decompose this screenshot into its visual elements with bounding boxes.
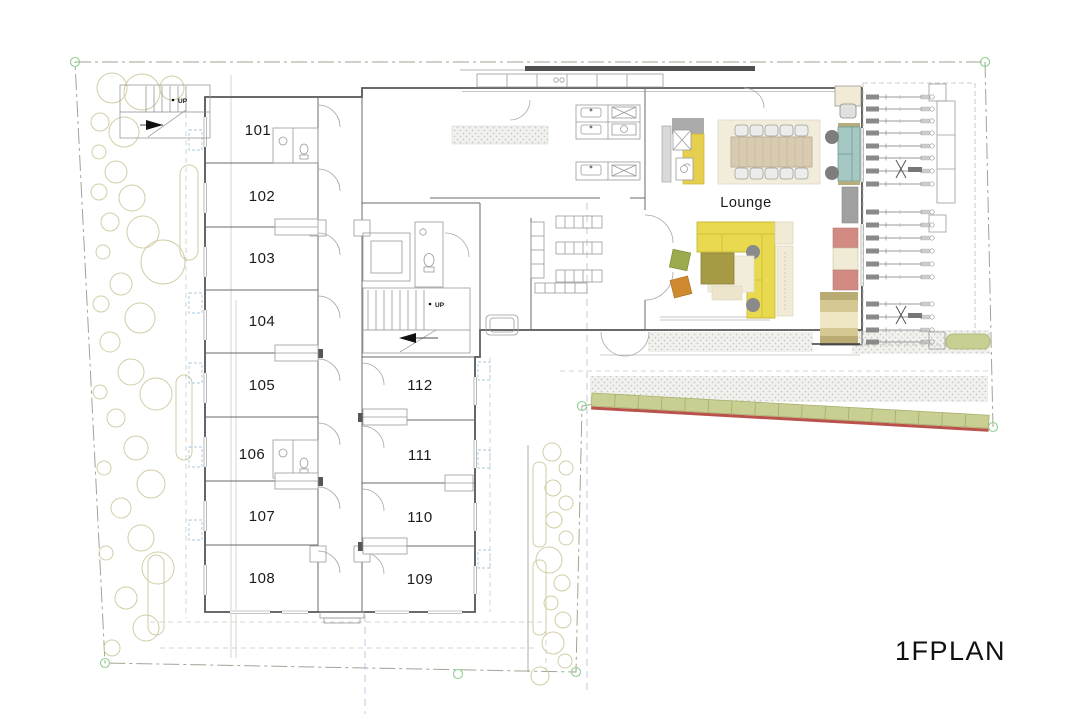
green-planter bbox=[946, 334, 990, 349]
room-label-107: 107 bbox=[249, 508, 276, 525]
up-label-interior-stair: UP bbox=[435, 302, 445, 309]
room-label-108: 108 bbox=[249, 570, 276, 587]
round-side-table bbox=[825, 130, 839, 144]
round-side-table bbox=[746, 298, 760, 312]
floor-cushion-green bbox=[669, 249, 690, 270]
round-side-table bbox=[825, 166, 839, 180]
lounge-kitchenette bbox=[662, 118, 704, 184]
dining-set bbox=[718, 120, 820, 184]
floor-plan-drawing: UP UP bbox=[0, 0, 1080, 720]
dining-table bbox=[731, 137, 812, 167]
floor-cushion-orange bbox=[670, 276, 692, 298]
striped-shelf bbox=[833, 228, 858, 290]
room-label-110: 110 bbox=[407, 509, 432, 526]
room-label-112: 112 bbox=[407, 377, 432, 394]
plan-title: 1FPLAN bbox=[895, 636, 1006, 666]
room-label-106: 106 bbox=[239, 446, 266, 463]
corner-table bbox=[775, 222, 793, 244]
room-label-102: 102 bbox=[249, 188, 276, 205]
room-label-104: 104 bbox=[249, 313, 276, 330]
room-label-109: 109 bbox=[407, 571, 434, 588]
desk-chair bbox=[840, 104, 856, 118]
kitchen-island-2 bbox=[576, 162, 640, 180]
kitchen-island-1 bbox=[576, 105, 640, 139]
desk bbox=[835, 86, 861, 106]
lounge-label: Lounge bbox=[720, 195, 771, 211]
room-label-101: 101 bbox=[245, 122, 272, 139]
room-label-105: 105 bbox=[249, 377, 276, 394]
lounge-table bbox=[701, 253, 734, 284]
floor-plan-page: UP UP bbox=[0, 0, 1080, 720]
room-label-103: 103 bbox=[249, 250, 276, 267]
up-label-exterior-stair: UP bbox=[178, 98, 188, 105]
gray-cabinet bbox=[842, 187, 858, 223]
room-label-111: 111 bbox=[408, 447, 432, 464]
entrance-canopy bbox=[525, 66, 755, 71]
